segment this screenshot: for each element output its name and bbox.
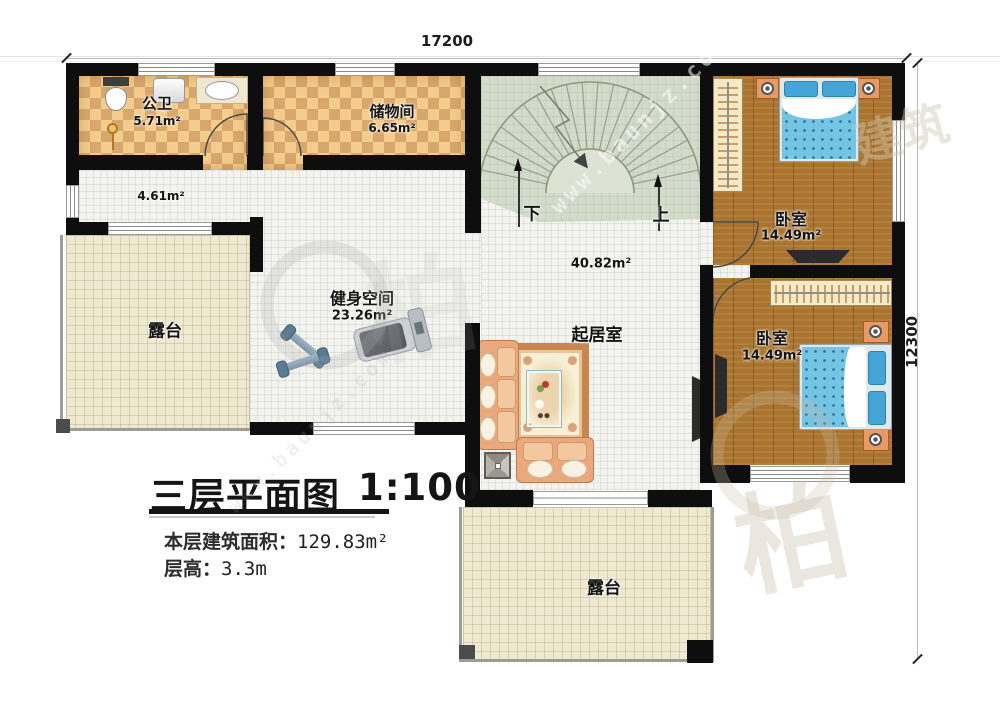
wardrobe [713,78,743,192]
nightstand [863,429,889,451]
floor-height-label: 层高： [164,558,221,580]
wall-segment [247,155,263,170]
wall-segment [687,640,713,663]
wall-segment [248,76,263,155]
door-arc-bedroom-bottom [713,278,750,323]
sofa-vertical [477,340,519,450]
sliding-door-opening [533,491,648,505]
wall-segment [648,490,712,507]
terrace-parapet [60,235,63,431]
door-arc-storage [263,118,301,156]
lamp-icon [869,433,882,446]
door-arc-bathroom [205,114,247,156]
room-label-gym: 健身空间 [330,291,394,307]
wardrobe [770,280,892,306]
room-area-bedroom-bottom: 14.49m² [742,350,802,363]
terrace-parapet [459,659,714,662]
bed-pillow [868,351,886,385]
wall-segment [250,422,313,435]
floor-area-label: 本层建筑面积： [164,531,297,553]
stair-down-label: 下 [524,207,541,224]
wall-segment [750,265,892,278]
wall-segment [850,465,905,483]
room-area-corridor: 4.61m² [137,190,184,202]
wall-segment [215,63,335,76]
bed-top-bedroom [779,77,859,162]
nightstand [756,78,779,99]
parapet-corner [56,419,70,433]
side-table [484,452,511,479]
bed-pillow [784,81,818,97]
coffee-table [527,371,561,427]
bed-pillow [822,81,856,97]
title-underline-shadow [149,516,375,518]
bed-pillow [868,391,886,425]
side-table-center [495,463,501,469]
wall-segment [212,222,263,235]
window-opening [335,63,395,76]
room-label-living: 起居室 [572,328,623,345]
wardrobe-rail [774,292,890,294]
sofa-cushion [497,379,516,409]
nightstand [857,78,880,99]
room-area-storage: 6.65m² [368,122,415,134]
room-area-bathroom: 5.71m² [133,115,180,127]
wall-segment [395,63,538,76]
window-opening [138,63,215,76]
wall-segment [700,465,750,483]
wall-segment [66,222,108,235]
stair-up-arrow-head [654,174,662,187]
window-opening [313,422,415,435]
stair-up-label: 上 [653,208,670,225]
bed-sheet-fold [844,347,866,427]
tv-bedroom-bottom-icon [715,354,727,418]
floor-area-line: 本层建筑面积：129.83m² [164,527,389,554]
floor-drain-pipe [112,133,114,150]
sofa-pillow [561,460,587,478]
room-label-bathroom: 公卫 [142,97,172,112]
sofa-pillow [480,353,496,377]
room-label-bedroom-top: 卧室 [775,212,807,228]
sink-icon [205,81,239,100]
wardrobe-hangers [775,285,889,303]
room-label-bedroom-bottom: 卧室 [756,331,788,347]
sofa-pillow [480,385,496,409]
lamp-icon [761,82,774,95]
sofa-cushion [557,442,587,461]
sofa-bottom [516,437,594,483]
floor-height-line: 层高：3.3m [164,554,267,581]
wall-segment [303,155,480,170]
sofa-pillow [480,417,496,441]
parapet-corner [459,645,475,659]
nightstand [863,321,889,343]
window-opening [750,466,850,482]
floor-area-value: 129.83m² [297,531,389,553]
room-label-terrace-bottom: 露台 [587,581,621,598]
room-area-gym: 23.26m² [332,310,392,323]
room-label-terrace-left: 露台 [148,324,182,341]
wall-segment [66,63,138,76]
window-opening [892,120,905,222]
wall-segment [892,76,905,120]
room-area-stair-hall: 40.82m² [571,258,631,271]
lamp-icon [869,325,882,338]
sofa-cushion [497,411,516,443]
stair-down-arrow-head [514,158,522,171]
window-opening [538,63,640,76]
terrace-parapet [459,507,462,662]
window-opening [108,222,212,235]
dimension-line-top [66,58,907,59]
room-area-bedroom-top: 14.49m² [761,230,821,243]
wall-segment [66,155,203,170]
floor-plan-canvas: 下 上 [0,0,1000,706]
lamp-icon [862,82,875,95]
terrace-parapet [711,507,714,662]
wall-segment [415,422,467,435]
sofa-cushion [523,442,553,461]
bed-bottom-bedroom [799,344,892,430]
wardrobe-rail [727,82,729,188]
stair-landing-arc [546,149,634,193]
title-underline [149,509,389,514]
window-opening [66,185,79,218]
toilet-tank-icon [103,77,129,86]
sofa-pillow [527,460,553,478]
sofa-cushion [497,347,516,377]
room-label-storage: 储物间 [369,105,414,120]
floor-height-value: 3.3m [221,558,267,580]
dimension-top-label: 17200 [421,32,473,50]
wall-segment [700,76,713,222]
wall-segment [700,265,713,483]
wall-segment [465,76,481,233]
terrace-parapet [60,428,251,431]
stair-down-arrow-line [518,171,520,227]
dimension-right-label: 12300 [903,316,921,368]
wall-segment [640,63,905,76]
door-arc-bedroom-top [713,222,758,267]
